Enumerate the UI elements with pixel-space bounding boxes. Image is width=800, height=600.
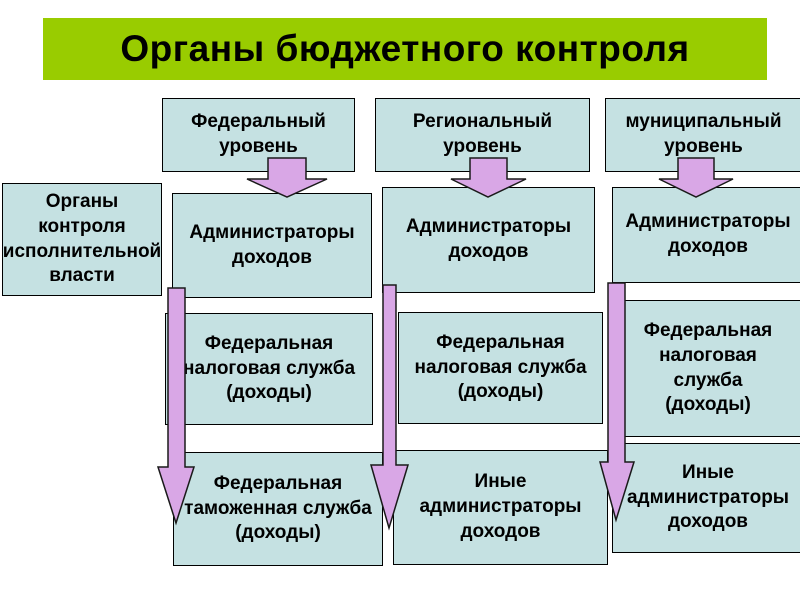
executive-control-bodies-box: Органы контроля исполнительной власти: [2, 183, 162, 296]
federal-customs-service-box: Федеральная таможенная служба (доходы): [173, 452, 383, 566]
municipal-tax-service-box: Федеральная налоговая служба (доходы): [612, 300, 800, 437]
header-regional-level: Региональный уровень: [375, 98, 590, 172]
header-municipal-level: муниципальный уровень: [605, 98, 800, 172]
municipal-other-administrators-box: Иные администраторы доходов: [612, 443, 800, 553]
regional-revenue-administrators-box: Администраторы доходов: [382, 187, 595, 293]
header-federal-level: Федеральный уровень: [162, 98, 355, 172]
federal-revenue-administrators-box: Администраторы доходов: [172, 193, 372, 298]
regional-tax-service-box: Федеральная налоговая служба (доходы): [398, 312, 603, 424]
municipal-revenue-administrators-box: Администраторы доходов: [612, 187, 800, 283]
slide: Органы бюджетного контроля Федеральный у…: [0, 0, 800, 600]
federal-tax-service-box: Федеральная налоговая служба (доходы): [165, 313, 373, 425]
regional-other-administrators-box: Иные администраторы доходов: [393, 450, 608, 565]
slide-title: Органы бюджетного контроля: [120, 28, 689, 70]
title-banner: Органы бюджетного контроля: [43, 18, 767, 80]
